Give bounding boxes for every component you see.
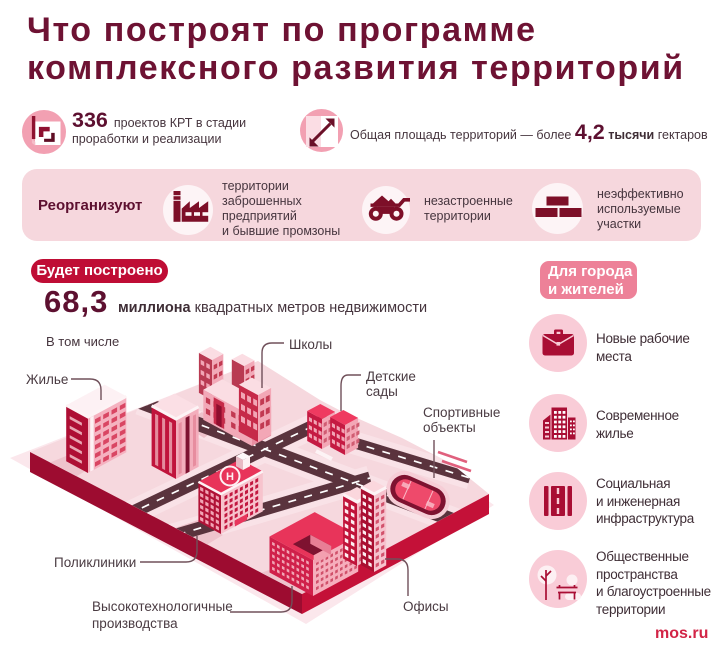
svg-text:Школы: Школы [289, 337, 332, 352]
svg-text:Офисы: Офисы [403, 599, 449, 614]
svg-text:производства: производства [92, 616, 178, 631]
svg-text:объекты: объекты [423, 420, 476, 435]
svg-text:сады: сады [366, 384, 398, 399]
svg-text:Спортивные: Спортивные [423, 405, 500, 420]
svg-text:H: H [226, 471, 234, 483]
svg-text:Детские: Детские [366, 369, 416, 384]
svg-text:Жилье: Жилье [26, 372, 68, 387]
svg-text:Высокотехнологичные: Высокотехнологичные [92, 599, 233, 614]
svg-text:Поликлиники: Поликлиники [54, 555, 136, 570]
